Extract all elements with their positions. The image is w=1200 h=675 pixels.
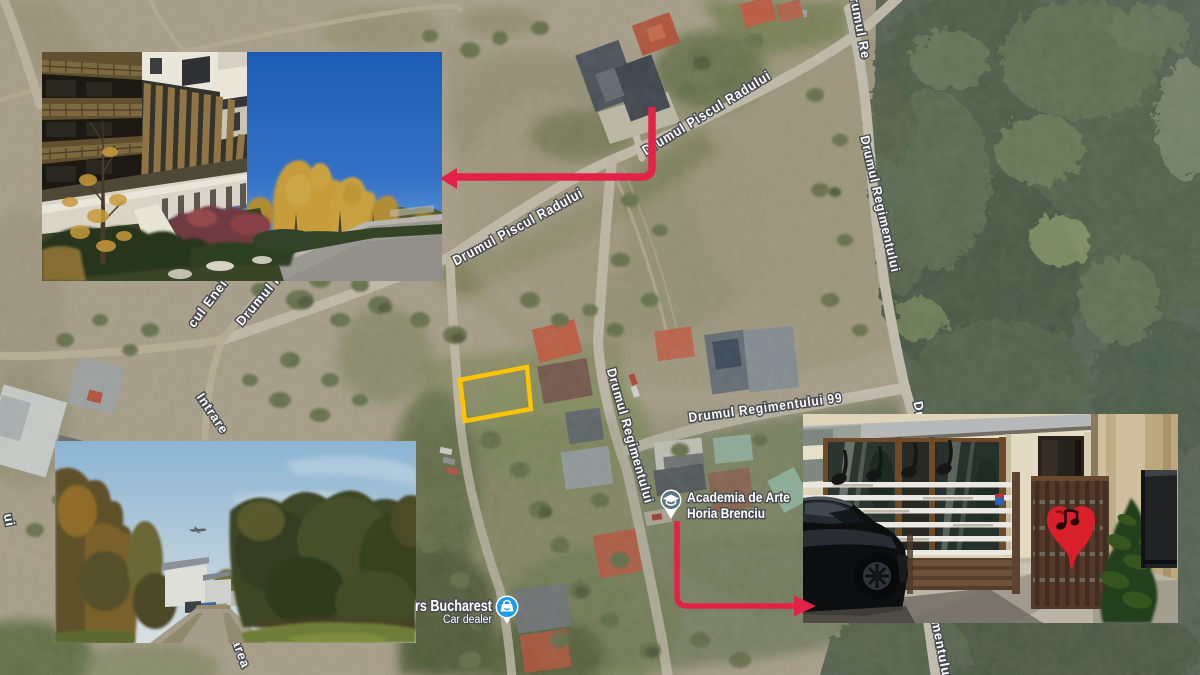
svg-text:Car dealer: Car dealer — [443, 614, 492, 626]
svg-text:rs Bucharest: rs Bucharest — [415, 598, 492, 615]
svg-text:Horia Brenciu: Horia Brenciu — [687, 506, 765, 521]
svg-text:Academia de Arte: Academia de Arte — [687, 490, 790, 505]
